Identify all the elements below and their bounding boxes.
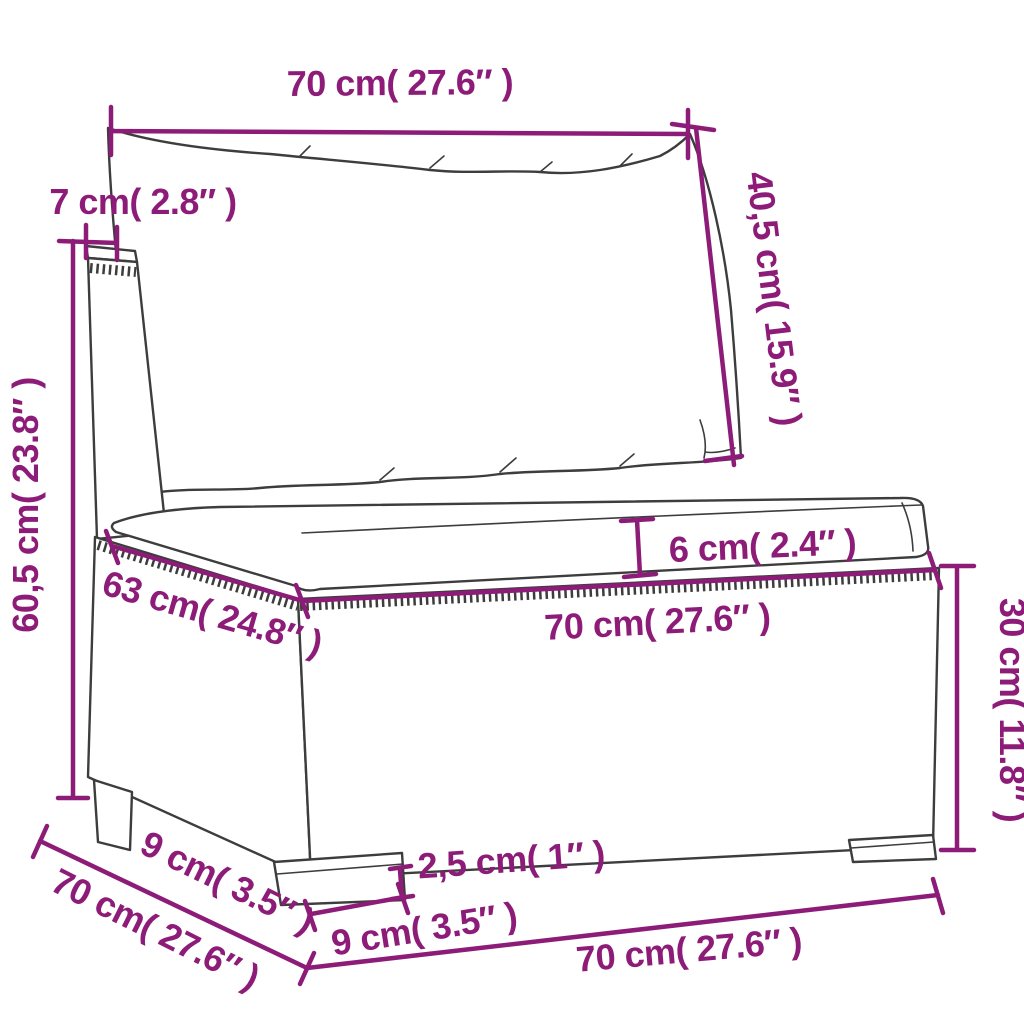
back-left-leg [94,780,132,850]
dim-total-height-label: 60,5 cm( 23.8″ ) [5,377,46,632]
diagram-svg: 70 cm( 27.6″ ) 40,5 cm( 15.9″ ) 7 cm( 2.… [0,0,1024,1024]
dim-back-cushion-width-label: 70 cm( 27.6″ ) [287,61,514,104]
dim-overall-width-label: 70 cm( 27.6″ ) [574,919,803,980]
sofa-line-art [86,128,939,905]
dim-seat-cushion-thickness-label: 6 cm( 2.4″ ) [668,521,857,570]
dimension-diagram: 70 cm( 27.6″ ) 40,5 cm( 15.9″ ) 7 cm( 2.… [0,0,1024,1024]
dim-back-frame-thickness-label: 7 cm( 2.8″ ) [49,181,236,222]
dim-base-height-label: 30 cm( 11.8″ ) [992,598,1024,822]
dim-total-height: 60,5 cm( 23.8″ ) [5,241,88,798]
front-right-leg [849,835,936,862]
dim-back-cushion-width: 70 cm( 27.6″ ) [111,61,688,158]
rattan-base [88,537,939,878]
dim-back-cushion-height-label: 40,5 cm( 15.9″ ) [738,169,810,427]
dim-base-height: 30 cm( 11.8″ ) [941,566,1024,850]
